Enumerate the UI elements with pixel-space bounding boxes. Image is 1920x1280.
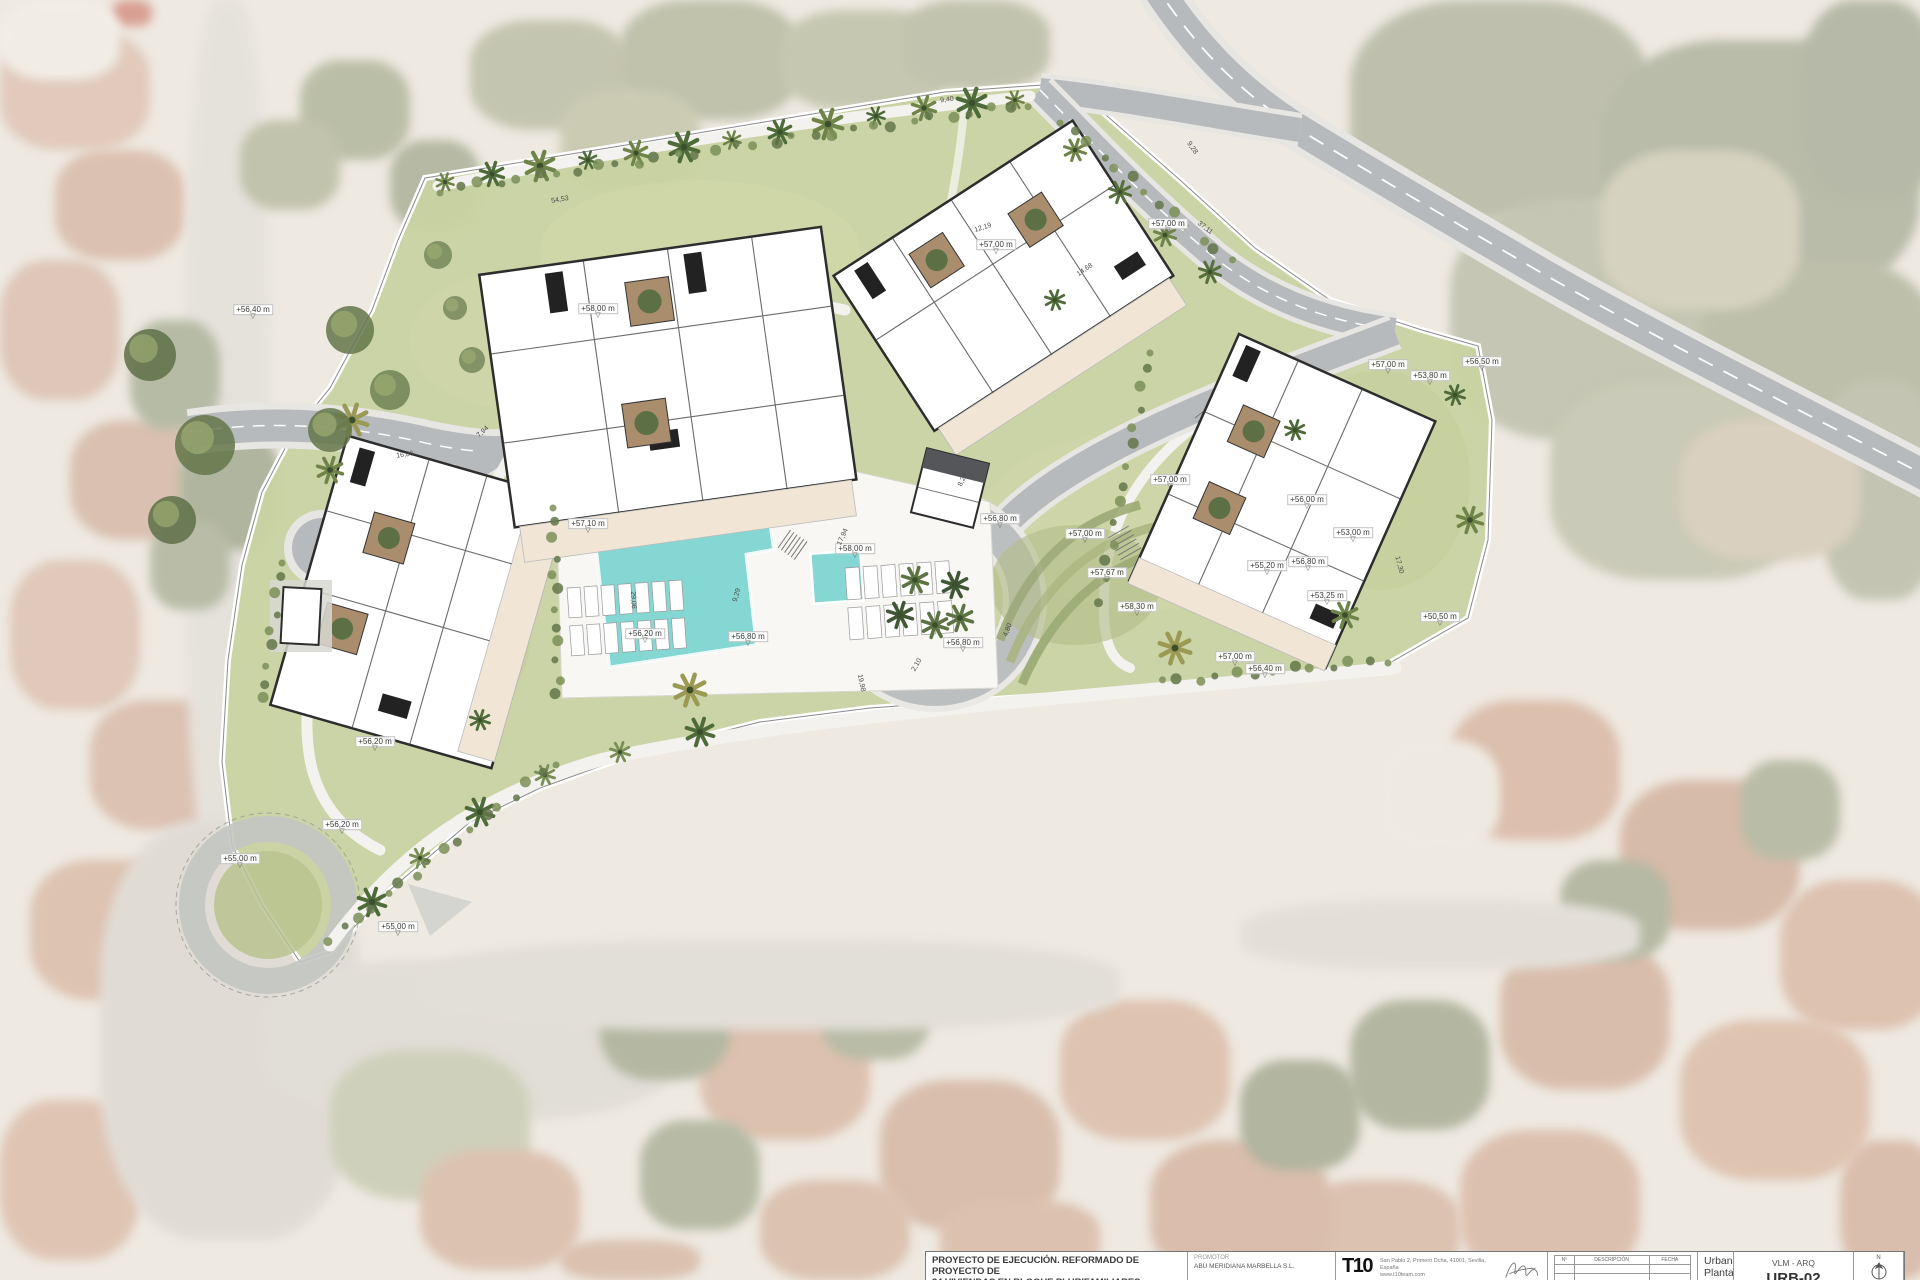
north-arrow-cell: N — [1854, 1252, 1904, 1280]
drawing-title: Urbanización. Planta Baja — [1698, 1252, 1734, 1280]
sheet-code-cell: VLM - ARQ URB-02 — [1734, 1252, 1854, 1280]
signature-scribble — [1502, 1256, 1541, 1280]
building-north-central — [479, 227, 861, 563]
site-plan-drawing — [0, 0, 1920, 1280]
promoter-label: PROMOTOR — [1194, 1255, 1329, 1261]
project-code: VLM - ARQ — [1740, 1258, 1847, 1268]
promoter-name: ABU MERIDIANA MARBELLA S.L. — [1194, 1263, 1329, 1270]
firm-logo: T10 — [1342, 1255, 1372, 1277]
north-arrow-icon — [1870, 1261, 1888, 1280]
title-block: PROYECTO DE EJECUCIÓN. REFORMADO DE PROY… — [925, 1251, 1905, 1280]
sheet-number: URB-02 — [1740, 1270, 1847, 1280]
revision-table: Nº DESCRIPCIÓN FECHA — [1548, 1252, 1698, 1280]
project-title: PROYECTO DE EJECUCIÓN. REFORMADO DE PROY… — [926, 1252, 1188, 1280]
firm-cell: T10 San Pablo 2, Primero Dcha, 41001, Se… — [1336, 1252, 1548, 1280]
firm-address: San Pablo 2, Primero Dcha, 41001, Sevill… — [1380, 1258, 1498, 1279]
promoter-cell: PROMOTOR ABU MERIDIANA MARBELLA S.L. — [1188, 1252, 1336, 1280]
site-plan-sheet: +56,40 m▽+57,10 m▽+58,00 m▽+58,00 m▽+56,… — [0, 0, 1920, 1280]
